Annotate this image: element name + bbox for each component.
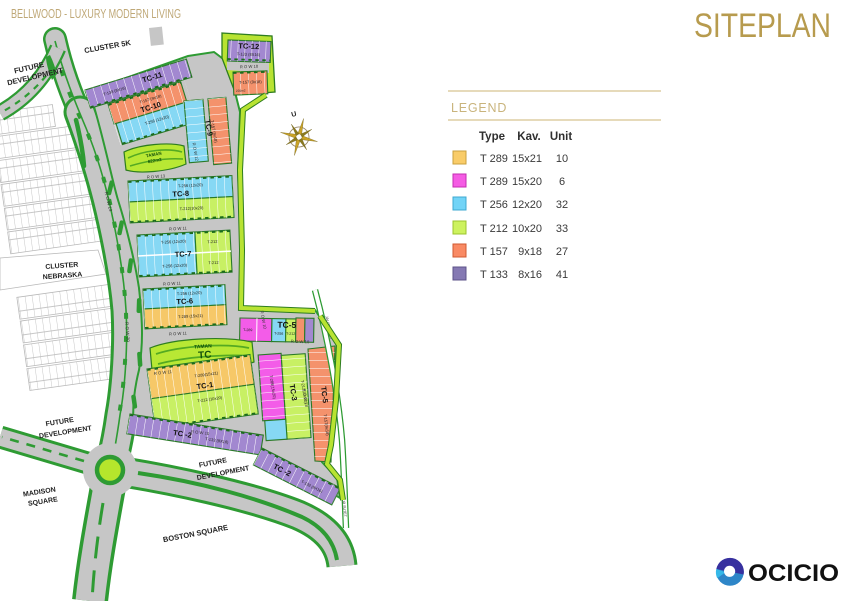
svg-text:T 157: T 157 bbox=[480, 246, 508, 258]
svg-text:6: 6 bbox=[559, 176, 565, 188]
svg-text:10x20: 10x20 bbox=[512, 223, 542, 235]
svg-text:T 289: T 289 bbox=[480, 176, 508, 188]
svg-text:BELLWOOD - LUXURY MODERN LIVIN: BELLWOOD - LUXURY MODERN LIVING bbox=[11, 7, 181, 21]
svg-text:TC-5: TC-5 bbox=[277, 320, 296, 330]
svg-text:Type: Type bbox=[479, 131, 505, 143]
svg-text:41: 41 bbox=[556, 269, 568, 281]
svg-text:12x20: 12x20 bbox=[512, 199, 542, 211]
svg-text:T-289: T-289 bbox=[243, 328, 252, 332]
svg-text:T-212: T-212 bbox=[208, 260, 219, 266]
svg-text:SQUARE: SQUARE bbox=[28, 496, 59, 508]
svg-text:R O W 10: R O W 10 bbox=[291, 339, 310, 345]
svg-text:T-212: T-212 bbox=[207, 239, 218, 245]
svg-text:Unit: Unit bbox=[550, 131, 573, 143]
svg-text:U: U bbox=[291, 111, 298, 119]
svg-text:32: 32 bbox=[556, 199, 568, 211]
svg-text:33: 33 bbox=[556, 223, 568, 235]
svg-text:FUTURE: FUTURE bbox=[45, 417, 74, 428]
svg-text:10: 10 bbox=[556, 153, 568, 165]
svg-text:15x21: 15x21 bbox=[512, 153, 542, 165]
svg-text:TC-12: TC-12 bbox=[238, 41, 259, 51]
svg-text:8x16: 8x16 bbox=[518, 269, 542, 281]
svg-text:NEBRASKA: NEBRASKA bbox=[43, 271, 83, 281]
svg-text:T-157 (9x18): T-157 (9x18) bbox=[239, 79, 263, 85]
svg-text:27: 27 bbox=[556, 246, 568, 258]
svg-text:BOSTON SQUARE: BOSTON SQUARE bbox=[162, 523, 229, 544]
svg-text:OCICIO: OCICIO bbox=[748, 560, 839, 587]
svg-text:TC-7: TC-7 bbox=[175, 249, 192, 259]
svg-text:LEGEND: LEGEND bbox=[451, 101, 507, 115]
svg-text:T 256: T 256 bbox=[480, 199, 508, 211]
svg-text:TC-6: TC-6 bbox=[176, 296, 193, 306]
svg-text:Kav.: Kav. bbox=[517, 131, 540, 143]
svg-text:220m2: 220m2 bbox=[236, 89, 246, 93]
svg-text:T 212: T 212 bbox=[480, 223, 508, 235]
svg-text:15x20: 15x20 bbox=[512, 176, 542, 188]
svg-text:FUTURE: FUTURE bbox=[198, 457, 228, 469]
svg-text:T-212: T-212 bbox=[286, 332, 295, 336]
svg-text:T-133 (8X16): T-133 (8X16) bbox=[237, 51, 261, 57]
svg-text:TC-8: TC-8 bbox=[172, 189, 189, 199]
svg-text:R O W 11: R O W 11 bbox=[169, 225, 188, 231]
svg-text:T 289: T 289 bbox=[480, 153, 508, 165]
svg-text:R O W 11: R O W 11 bbox=[163, 280, 182, 286]
svg-text:T 133: T 133 bbox=[480, 269, 508, 281]
svg-text:R O W 10: R O W 10 bbox=[240, 64, 259, 70]
svg-text:R O W 11: R O W 11 bbox=[169, 330, 188, 336]
svg-text:SITEPLAN: SITEPLAN bbox=[694, 7, 831, 45]
svg-text:T-256: T-256 bbox=[274, 332, 283, 336]
svg-text:CLUSTER 5K: CLUSTER 5K bbox=[84, 38, 133, 55]
svg-text:9x18: 9x18 bbox=[518, 246, 542, 258]
